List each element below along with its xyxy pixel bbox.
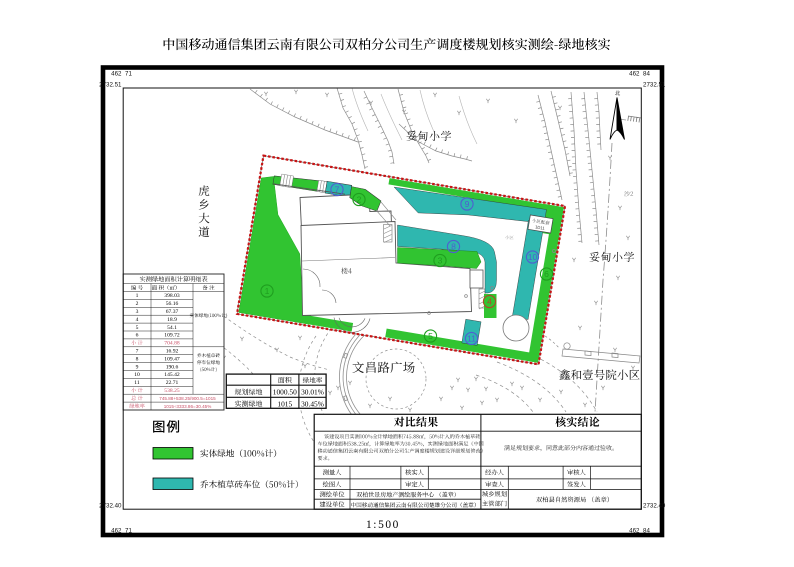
svg-text:1: 1 bbox=[265, 286, 270, 296]
svg-text:10: 10 bbox=[528, 252, 538, 262]
svg-text:84: 84 bbox=[643, 528, 650, 535]
svg-text:2732.51: 2732.51 bbox=[643, 82, 666, 89]
svg-text:6: 6 bbox=[544, 269, 549, 279]
svg-text:2732.40: 2732.40 bbox=[643, 503, 666, 510]
svg-text:8: 8 bbox=[136, 356, 139, 362]
svg-text:1015÷3333.86=30.45%: 1015÷3333.86=30.45% bbox=[164, 404, 212, 409]
svg-text:109.47: 109.47 bbox=[164, 356, 180, 362]
svg-text:3: 3 bbox=[438, 256, 443, 266]
svg-text:9: 9 bbox=[465, 199, 470, 209]
svg-text:5: 5 bbox=[136, 325, 139, 331]
svg-text:145.42: 145.42 bbox=[164, 372, 180, 378]
svg-text:462: 462 bbox=[111, 71, 122, 78]
svg-text:2: 2 bbox=[136, 301, 139, 307]
svg-text:1:500: 1:500 bbox=[366, 519, 400, 531]
svg-text:109.72: 109.72 bbox=[164, 333, 180, 339]
svg-text:71: 71 bbox=[125, 71, 132, 78]
svg-text:4: 4 bbox=[487, 297, 492, 307]
svg-text:745.88+538.25/900.5=1015: 745.88+538.25/900.5=1015 bbox=[159, 396, 216, 401]
svg-text:11: 11 bbox=[134, 380, 140, 386]
svg-text:18.9: 18.9 bbox=[167, 317, 177, 323]
svg-text:7: 7 bbox=[335, 185, 340, 195]
svg-text:3: 3 bbox=[136, 309, 139, 315]
svg-text:30.01%: 30.01% bbox=[301, 388, 324, 397]
svg-text:16.92: 16.92 bbox=[166, 349, 179, 355]
svg-text:67.37: 67.37 bbox=[166, 309, 179, 315]
svg-text:462: 462 bbox=[629, 528, 640, 535]
svg-text:5: 5 bbox=[428, 331, 433, 341]
svg-text:6: 6 bbox=[136, 333, 139, 339]
svg-text:10: 10 bbox=[134, 372, 140, 378]
svg-text:11: 11 bbox=[467, 334, 476, 344]
svg-text:398.03: 398.03 bbox=[164, 293, 180, 299]
svg-text:2732.51: 2732.51 bbox=[99, 82, 122, 89]
svg-text:54.1: 54.1 bbox=[167, 325, 177, 331]
svg-text:22.71: 22.71 bbox=[166, 380, 179, 386]
svg-text:4: 4 bbox=[136, 317, 139, 323]
svg-text:1: 1 bbox=[136, 293, 139, 299]
svg-text:30.45%: 30.45% bbox=[301, 399, 324, 408]
svg-text:7: 7 bbox=[136, 349, 139, 355]
svg-text:84: 84 bbox=[643, 71, 650, 78]
svg-text:462: 462 bbox=[111, 528, 122, 535]
svg-text:1000.50: 1000.50 bbox=[273, 388, 297, 397]
svg-text:2: 2 bbox=[357, 195, 362, 205]
svg-text:1015: 1015 bbox=[277, 399, 292, 408]
svg-text:9: 9 bbox=[136, 364, 139, 370]
svg-text:2732.40: 2732.40 bbox=[99, 503, 122, 510]
svg-text:71: 71 bbox=[125, 528, 132, 535]
svg-text:704.88: 704.88 bbox=[164, 341, 180, 347]
svg-text:56.16: 56.16 bbox=[166, 301, 179, 307]
svg-text:8: 8 bbox=[451, 242, 456, 252]
svg-text:538.25: 538.25 bbox=[164, 388, 180, 394]
svg-text:190.6: 190.6 bbox=[166, 364, 179, 370]
svg-text:462: 462 bbox=[629, 71, 640, 78]
